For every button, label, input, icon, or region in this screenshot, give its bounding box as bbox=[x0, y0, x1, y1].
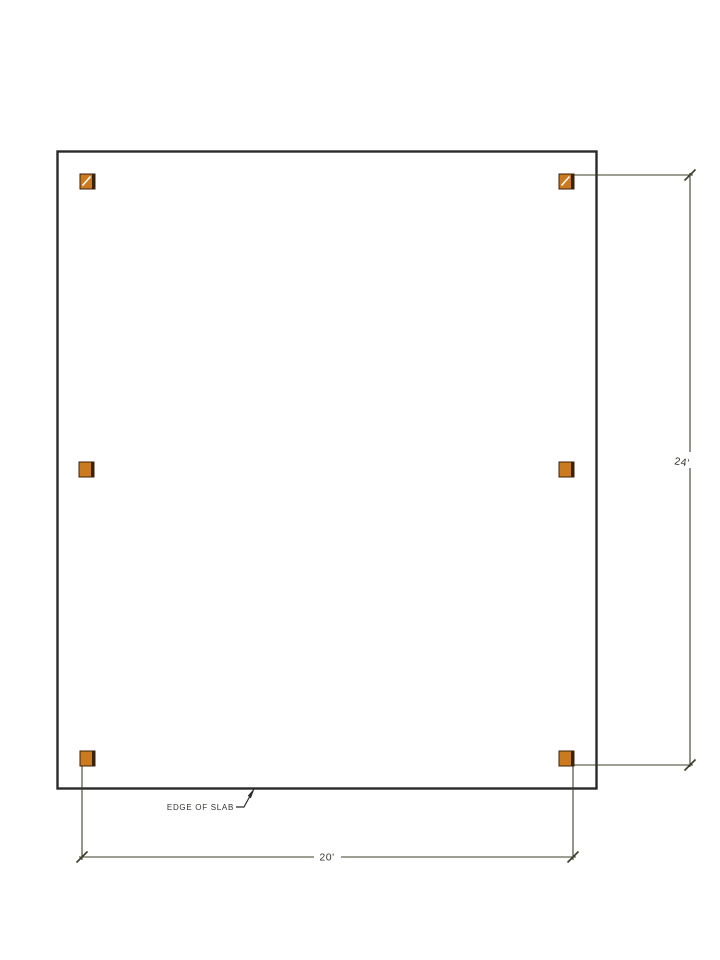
column-marker bbox=[80, 751, 95, 766]
leader-line-edge-of-slab bbox=[236, 796, 250, 807]
column-marker bbox=[80, 174, 95, 189]
column-marker bbox=[79, 462, 94, 477]
slab-plan-drawing: 20' 24' EDGE OF SLAB bbox=[0, 0, 720, 960]
edge-of-slab-label: EDGE OF SLAB bbox=[167, 803, 234, 812]
slab-outline bbox=[58, 152, 597, 789]
dimension-text-20ft: 20' bbox=[319, 852, 334, 864]
plan-svg: 20' 24' EDGE OF SLAB bbox=[0, 0, 720, 960]
column-marker bbox=[559, 751, 574, 766]
dimension-text-24ft: 24' bbox=[673, 455, 690, 469]
column-marker bbox=[559, 174, 574, 189]
column-marker bbox=[559, 462, 574, 477]
